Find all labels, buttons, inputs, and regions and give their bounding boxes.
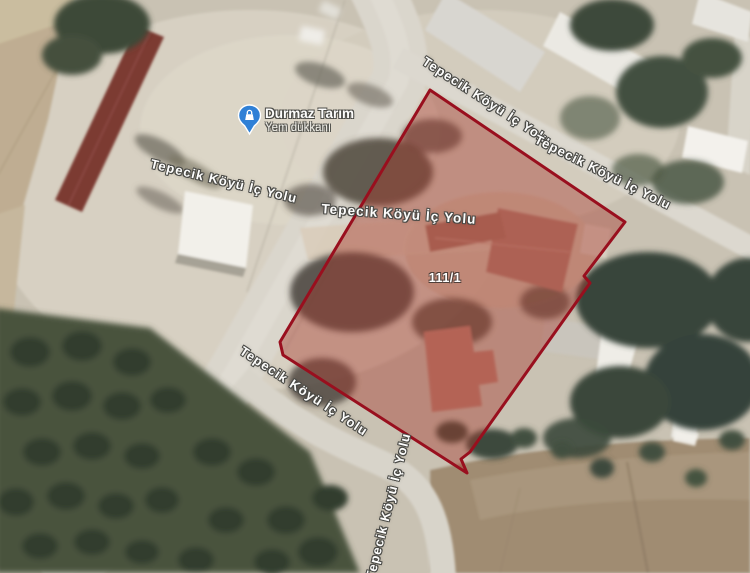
parcel-number-label: 111/1 <box>429 271 461 285</box>
satellite-map[interactable]: Tepecik Köyü İç Yolu Tepecik Köyü İç Yol… <box>0 0 750 573</box>
poi-marker[interactable]: Durmaz Tarım Yem dükkanı <box>236 104 354 136</box>
store-pin-icon[interactable] <box>236 104 263 136</box>
satellite-imagery <box>0 0 750 573</box>
poi-title[interactable]: Durmaz Tarım <box>265 106 354 121</box>
poi-subtitle: Yem dükkanı <box>265 122 354 134</box>
